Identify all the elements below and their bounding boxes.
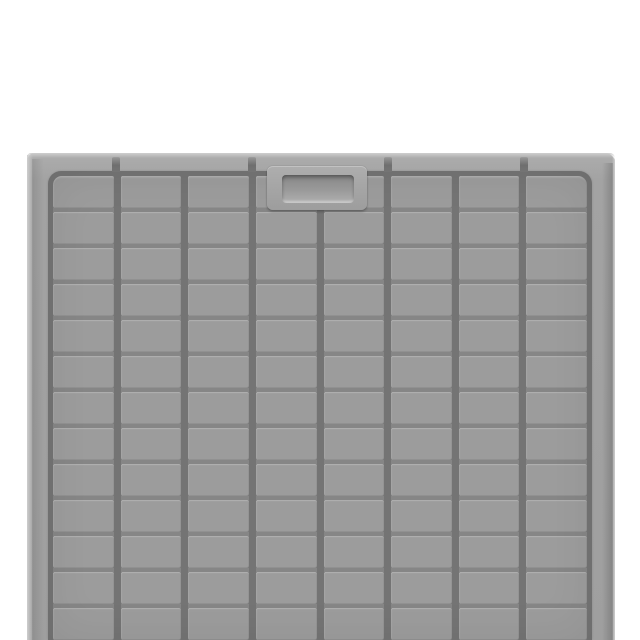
panel-cell bbox=[121, 428, 182, 460]
panel-cell bbox=[256, 212, 317, 244]
panel-cell bbox=[526, 356, 587, 388]
panel-cell bbox=[391, 572, 452, 604]
panel-cell bbox=[459, 464, 520, 496]
panel-cell bbox=[391, 320, 452, 352]
panel-cell bbox=[459, 572, 520, 604]
panel-cell bbox=[121, 536, 182, 568]
panel-cell bbox=[188, 176, 249, 208]
panel-cell bbox=[188, 536, 249, 568]
panel-cell bbox=[459, 392, 520, 424]
panel-cell bbox=[459, 608, 520, 640]
panel-cell bbox=[121, 248, 182, 280]
panel-cell bbox=[53, 536, 114, 568]
rim-notch bbox=[112, 157, 120, 172]
panel-left-edge-highlight bbox=[27, 155, 33, 640]
panel-cell bbox=[188, 572, 249, 604]
panel-cell bbox=[391, 464, 452, 496]
panel-cell bbox=[256, 248, 317, 280]
panel-cell bbox=[188, 212, 249, 244]
panel-grid bbox=[53, 176, 587, 640]
panel-cell bbox=[526, 608, 587, 640]
panel-cell bbox=[526, 500, 587, 532]
panel-cell bbox=[53, 464, 114, 496]
panel-cell bbox=[188, 464, 249, 496]
panel-cell bbox=[526, 464, 587, 496]
panel-cell bbox=[53, 248, 114, 280]
panel-cell bbox=[53, 212, 114, 244]
panel-cell bbox=[391, 356, 452, 388]
panel-cell bbox=[324, 500, 385, 532]
panel-cell bbox=[324, 212, 385, 244]
panel-cell bbox=[391, 248, 452, 280]
panel-cell bbox=[188, 428, 249, 460]
panel-cell bbox=[391, 428, 452, 460]
handle-recess-pocket bbox=[282, 175, 354, 203]
product-photo bbox=[0, 0, 640, 640]
panel-cell bbox=[188, 320, 249, 352]
panel-cell bbox=[526, 536, 587, 568]
panel-cell bbox=[256, 608, 317, 640]
panel-cell bbox=[459, 428, 520, 460]
panel-cell bbox=[121, 608, 182, 640]
panel-cell bbox=[256, 428, 317, 460]
panel-cell bbox=[324, 608, 385, 640]
panel-cell bbox=[121, 572, 182, 604]
panel-cell bbox=[53, 428, 114, 460]
panel-cell bbox=[526, 428, 587, 460]
panel-cell bbox=[188, 392, 249, 424]
panel-top-edge-highlight bbox=[27, 153, 615, 158]
panel-cell bbox=[391, 212, 452, 244]
panel-cell bbox=[53, 284, 114, 316]
panel-cell bbox=[256, 500, 317, 532]
panel-cell bbox=[324, 572, 385, 604]
panel-cell bbox=[459, 500, 520, 532]
rim-notch bbox=[248, 157, 256, 172]
panel-cell bbox=[121, 500, 182, 532]
panel-cell bbox=[391, 608, 452, 640]
rim-notch bbox=[520, 157, 528, 172]
panel-cell bbox=[188, 248, 249, 280]
panel-left-inner-shadow bbox=[32, 159, 44, 640]
panel-cell bbox=[526, 248, 587, 280]
panel-cell bbox=[526, 572, 587, 604]
panel-cell bbox=[188, 500, 249, 532]
panel-cell bbox=[53, 176, 114, 208]
panel-cell bbox=[121, 464, 182, 496]
panel-cell bbox=[526, 284, 587, 316]
panel-cell bbox=[324, 284, 385, 316]
panel-cell bbox=[121, 212, 182, 244]
panel-cell bbox=[526, 320, 587, 352]
panel-cell bbox=[324, 536, 385, 568]
panel-cell bbox=[53, 608, 114, 640]
panel-cell bbox=[391, 536, 452, 568]
panel-cell bbox=[188, 608, 249, 640]
panel-cell bbox=[459, 248, 520, 280]
panel-cell bbox=[256, 572, 317, 604]
panel-cell bbox=[188, 356, 249, 388]
panel-cell bbox=[324, 248, 385, 280]
panel-cell bbox=[256, 464, 317, 496]
panel-cell bbox=[459, 320, 520, 352]
panel-right-edge-highlight bbox=[612, 157, 615, 640]
panel-cell bbox=[256, 356, 317, 388]
panel-cell bbox=[324, 356, 385, 388]
panel-cell bbox=[256, 536, 317, 568]
panel-cell bbox=[53, 356, 114, 388]
panel-outline-groove bbox=[48, 171, 592, 640]
panel-cell bbox=[121, 284, 182, 316]
panel-cell bbox=[459, 356, 520, 388]
panel-cell bbox=[324, 428, 385, 460]
panel-cell bbox=[459, 284, 520, 316]
panel-cell bbox=[256, 392, 317, 424]
panel-cell bbox=[53, 500, 114, 532]
panel-cell bbox=[121, 320, 182, 352]
panel-cell bbox=[256, 284, 317, 316]
plastic-panel bbox=[27, 153, 615, 640]
panel-cell bbox=[121, 356, 182, 388]
panel-cell bbox=[324, 464, 385, 496]
panel-cell bbox=[391, 500, 452, 532]
panel-cell bbox=[526, 392, 587, 424]
panel-cell bbox=[188, 284, 249, 316]
panel-cell bbox=[391, 176, 452, 208]
panel-cell bbox=[121, 176, 182, 208]
panel-cell bbox=[459, 212, 520, 244]
panel-cell bbox=[459, 536, 520, 568]
panel-cell bbox=[53, 392, 114, 424]
panel-cell bbox=[526, 212, 587, 244]
panel-cell bbox=[526, 176, 587, 208]
panel-cell bbox=[391, 392, 452, 424]
rim-notch bbox=[384, 157, 392, 172]
handle-plateau bbox=[267, 166, 367, 210]
panel-cell bbox=[324, 320, 385, 352]
panel-cell bbox=[391, 284, 452, 316]
panel-cell bbox=[53, 320, 114, 352]
panel-cell bbox=[53, 572, 114, 604]
panel-cell bbox=[324, 392, 385, 424]
panel-cell bbox=[459, 176, 520, 208]
panel-cell bbox=[256, 320, 317, 352]
panel-cell bbox=[121, 392, 182, 424]
